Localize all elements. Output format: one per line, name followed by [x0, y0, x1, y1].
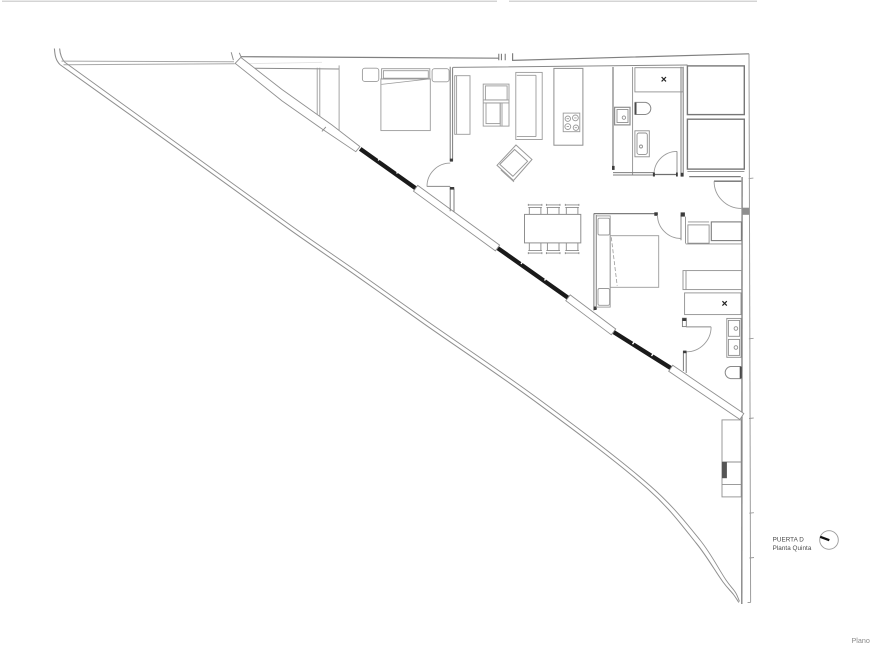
svg-text:Plano: Plano	[852, 636, 870, 645]
svg-text:PUERTA D: PUERTA D	[773, 537, 805, 544]
svg-text:Planta Quinta: Planta Quinta	[773, 545, 812, 552]
